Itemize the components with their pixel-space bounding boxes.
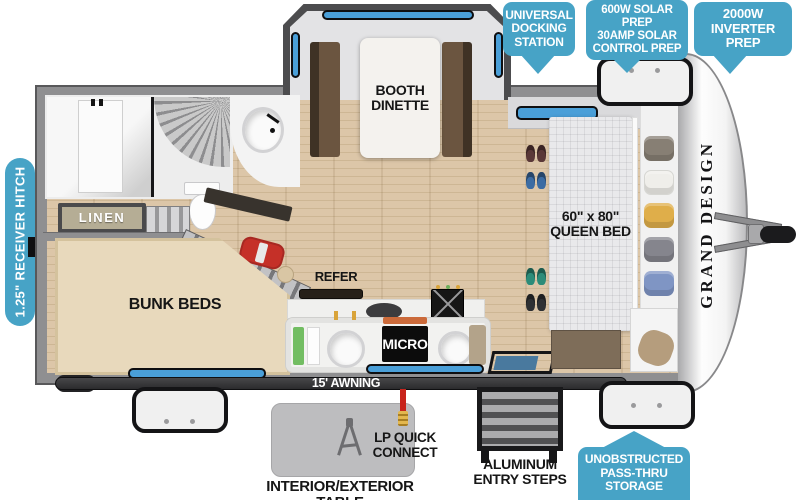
microwave-label: MICRO [382, 336, 427, 352]
lp-label: LP QUICK CONNECT [370, 431, 440, 460]
window [366, 364, 484, 374]
latch-icon [164, 419, 169, 424]
storage-door-left [132, 387, 228, 433]
stored-items [634, 326, 678, 370]
folded-clothes [644, 271, 674, 296]
latch-icon [655, 68, 660, 73]
receiver-hitch-label: 1.25" RECEIVER HITCH [13, 167, 28, 318]
entry-steps [477, 387, 563, 451]
lp-connector [398, 411, 408, 426]
window [322, 10, 474, 20]
brand-name: GRAND DESIGN [697, 141, 717, 309]
awning-label: 15' AWNING [300, 377, 392, 390]
callout-tail [520, 54, 556, 74]
faucet-icon [334, 311, 338, 320]
counter-end-board [469, 325, 486, 365]
shoes [526, 294, 546, 311]
stove-cooktop [431, 289, 464, 320]
latch-icon [657, 403, 662, 408]
shoes [526, 145, 546, 162]
callout-solar-prep: 600W SOLAR PREP 30AMP SOLAR CONTROL PREP [586, 0, 688, 60]
window [494, 32, 503, 78]
stove-knob-icon [436, 285, 440, 289]
microwave: MICRO [382, 326, 428, 362]
shower-wall [151, 97, 154, 197]
folded-clothes [644, 203, 674, 228]
kitchen-sink [438, 331, 473, 366]
shoes [526, 172, 546, 189]
linen-cabinet: LINEN [58, 203, 146, 233]
door-handle-icon [99, 99, 103, 106]
entry-door-mat [488, 351, 557, 374]
folded-clothes [644, 170, 674, 195]
latch-icon [631, 403, 636, 408]
wardrobe-door [78, 100, 123, 193]
steps-label: ALUMINUM ENTRY STEPS [462, 457, 578, 487]
dinette-bench-right [442, 42, 472, 157]
callout-inverter-prep: 2000W INVERTER PREP [694, 2, 792, 56]
callout-universal-docking: UNIVERSAL DOCKING STATION [503, 2, 575, 56]
folded-clothes [644, 136, 674, 161]
dinette-bench-left [310, 42, 340, 157]
folded-clothes [644, 237, 674, 262]
hitch-coupler [760, 226, 796, 243]
queen-bed: 60" x 80" QUEEN BED [549, 117, 632, 331]
callout-tail [712, 54, 748, 74]
dinette-table: BOOTH DINETTE [360, 38, 440, 158]
corner-cabinet [630, 308, 678, 372]
refrigerator [299, 289, 363, 299]
window [291, 32, 300, 78]
cutting-board-green [293, 327, 304, 365]
latch-icon [190, 419, 195, 424]
kitchen-sink [327, 330, 365, 368]
faucet-icon [270, 128, 275, 133]
cutting-board-white [307, 327, 320, 365]
cutting-board-orange [383, 317, 427, 324]
pass-thru-storage-door [599, 381, 695, 429]
queen-bed-label: 60" x 80" QUEEN BED [550, 209, 631, 239]
door-mat-blue [493, 356, 538, 370]
refrigerator-label: REFER [306, 270, 366, 284]
dinette-label: BOOTH DINETTE [371, 83, 429, 113]
front-wardrobe [47, 97, 151, 197]
bunk-label: BUNK BEDS [105, 296, 245, 313]
stove-knob-icon [456, 285, 460, 289]
callout-tail [602, 431, 666, 448]
table-label: INTERIOR/EXTERIOR TABLE [256, 479, 424, 500]
shoes [526, 268, 546, 285]
duffel-stripe [255, 242, 269, 264]
compass-logo-icon [334, 418, 364, 462]
faucet-icon [352, 311, 356, 320]
linen-label: LINEN [79, 210, 126, 225]
callout-pass-thru: UNOBSTRUCTED PASS-THRU STORAGE [578, 447, 690, 500]
brand-logo: GRAND DESIGN [690, 85, 724, 365]
bathroom-sink [242, 107, 284, 153]
lp-hose [400, 389, 406, 412]
hat [277, 266, 294, 283]
bed-footboard [551, 330, 621, 369]
door-handle-icon [91, 99, 95, 106]
stove-knob-icon [446, 285, 450, 289]
rv-floorplan: 1.25" RECEIVER HITCH BOOTH DINETTE LINEN [0, 0, 800, 500]
callout-tail [612, 58, 642, 73]
